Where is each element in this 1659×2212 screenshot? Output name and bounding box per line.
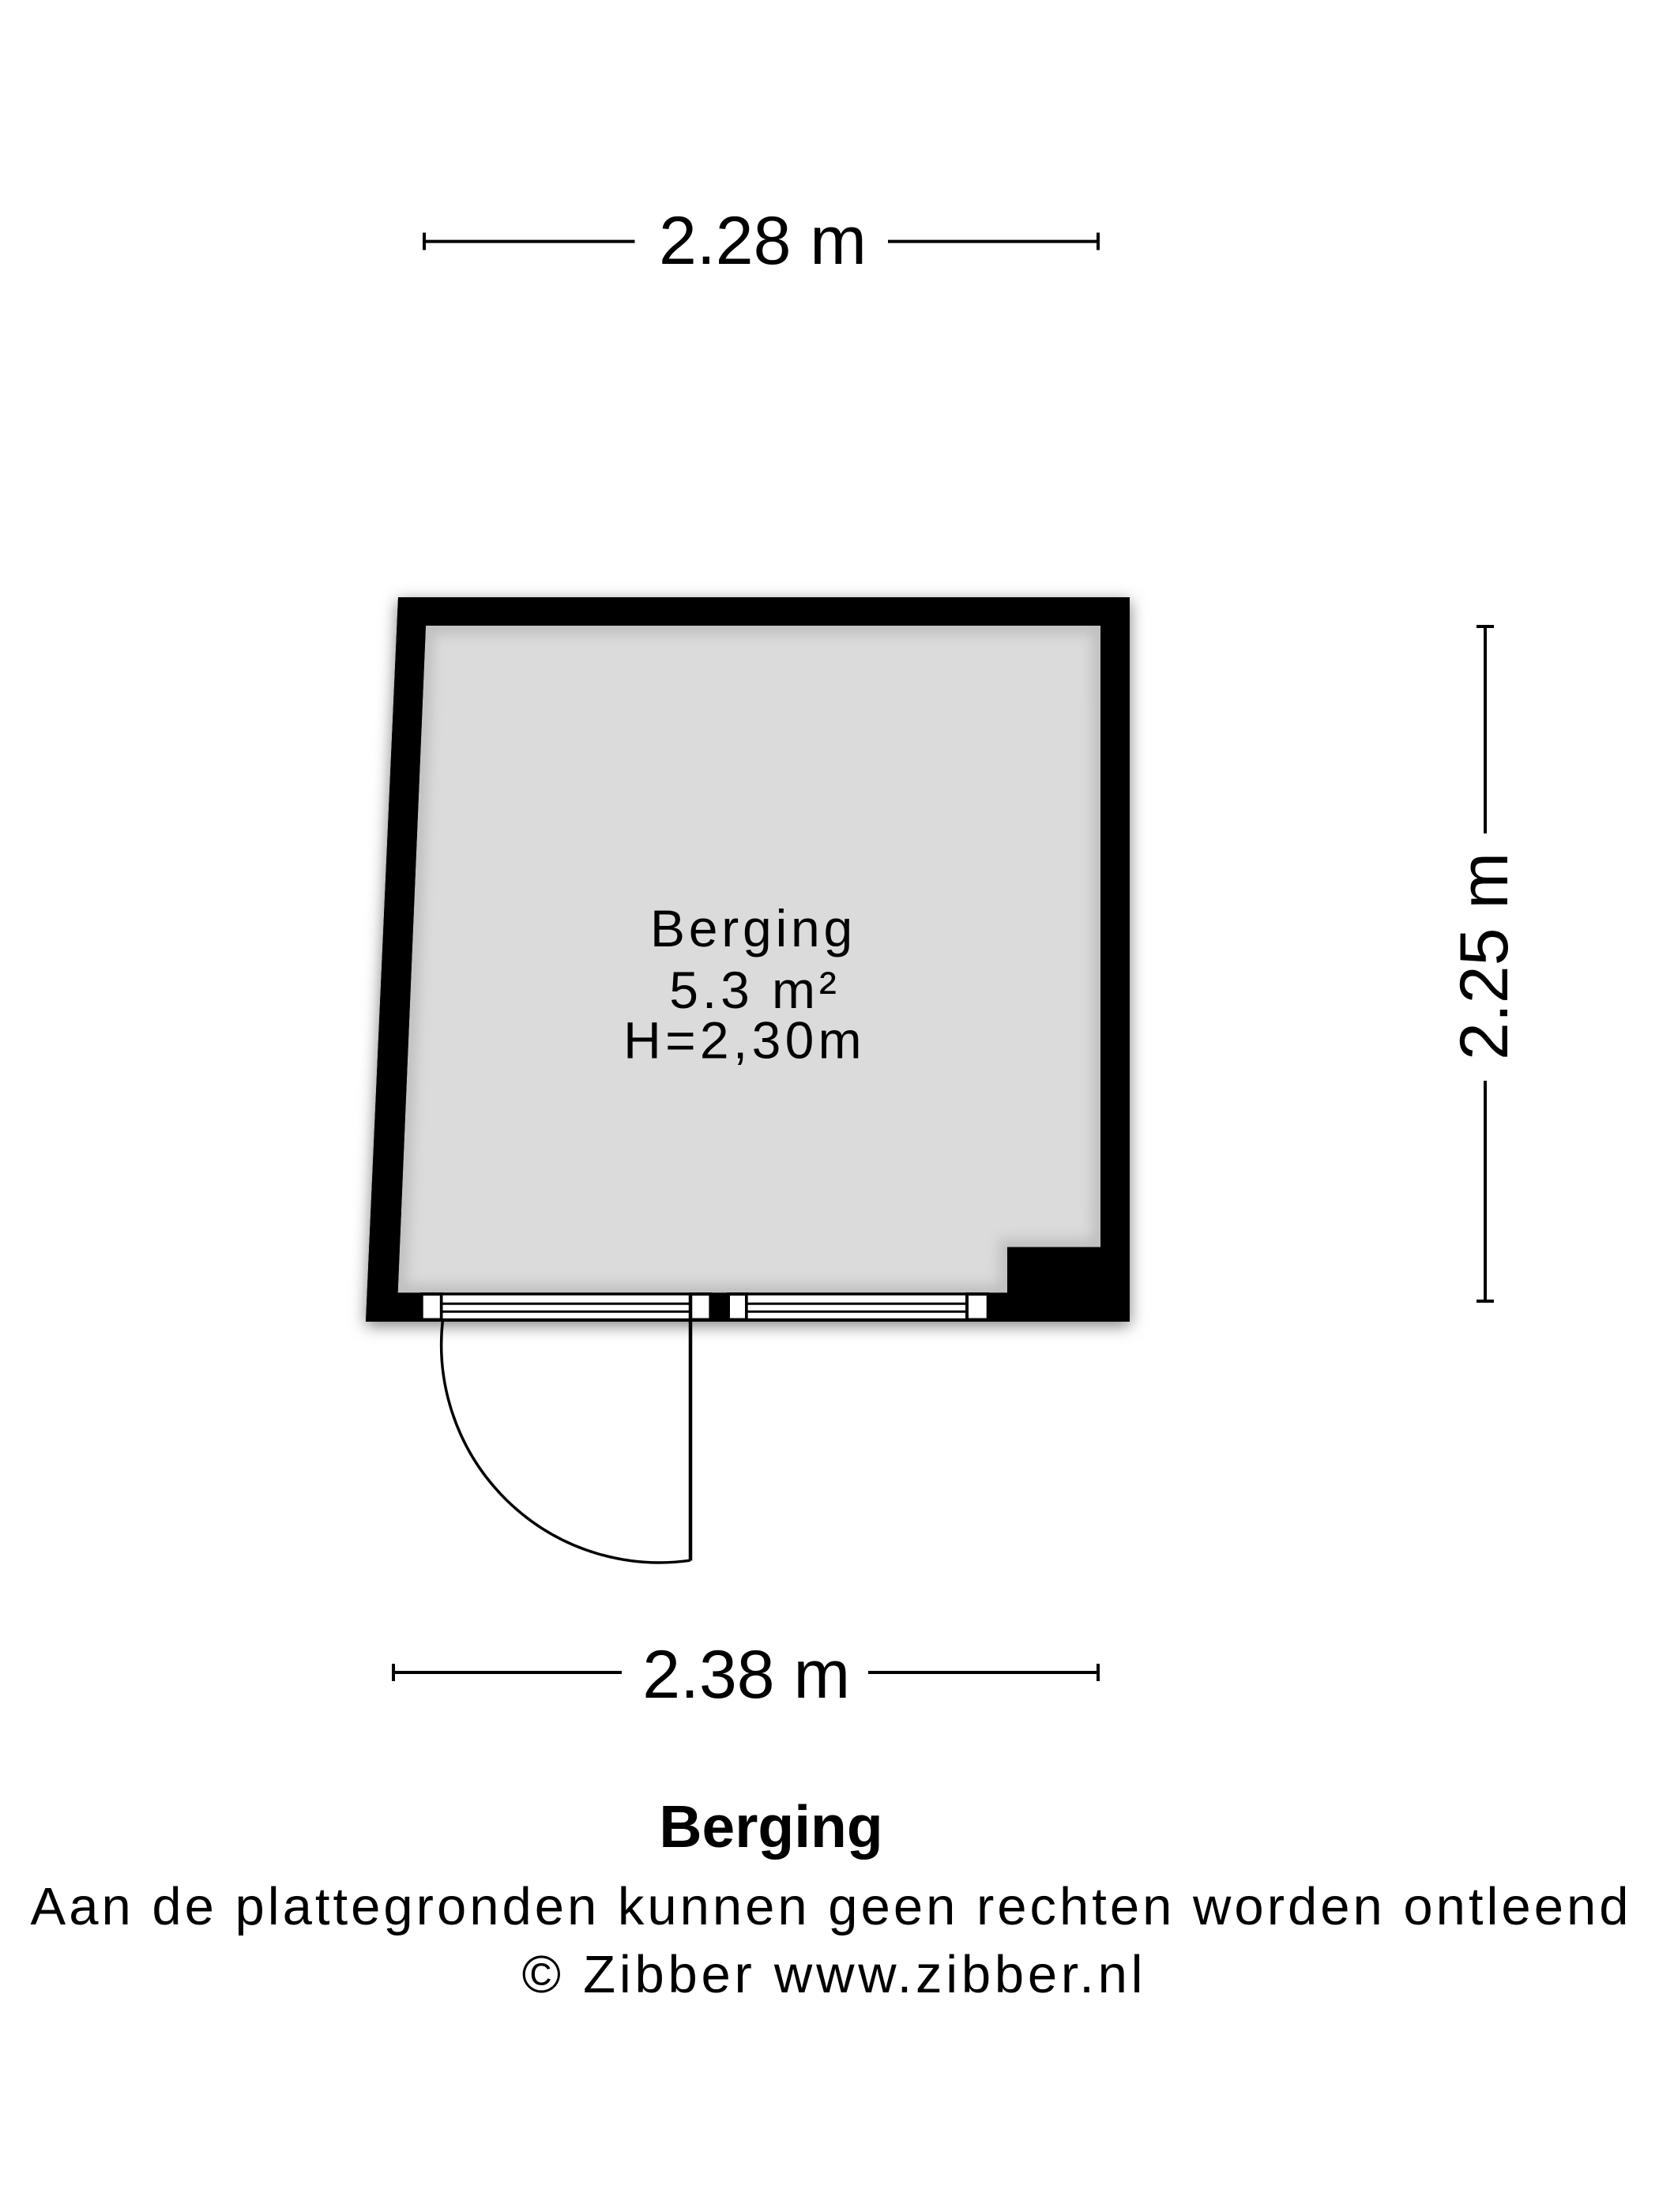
svg-text:H=2,30m: H=2,30m [623, 1011, 866, 1070]
svg-text:Berging: Berging [659, 1793, 882, 1860]
svg-text:Aan de plattegronden kunnen ge: Aan de plattegronden kunnen geen rechten… [31, 1877, 1632, 1936]
svg-text:2.38 m: 2.38 m [642, 1637, 850, 1713]
svg-text:Berging: Berging [650, 899, 856, 957]
svg-text:2.28 m: 2.28 m [659, 203, 867, 279]
svg-text:© Zibber www.zibber.nl: © Zibber www.zibber.nl [522, 1945, 1147, 2004]
svg-text:2.25 m: 2.25 m [1446, 852, 1522, 1060]
